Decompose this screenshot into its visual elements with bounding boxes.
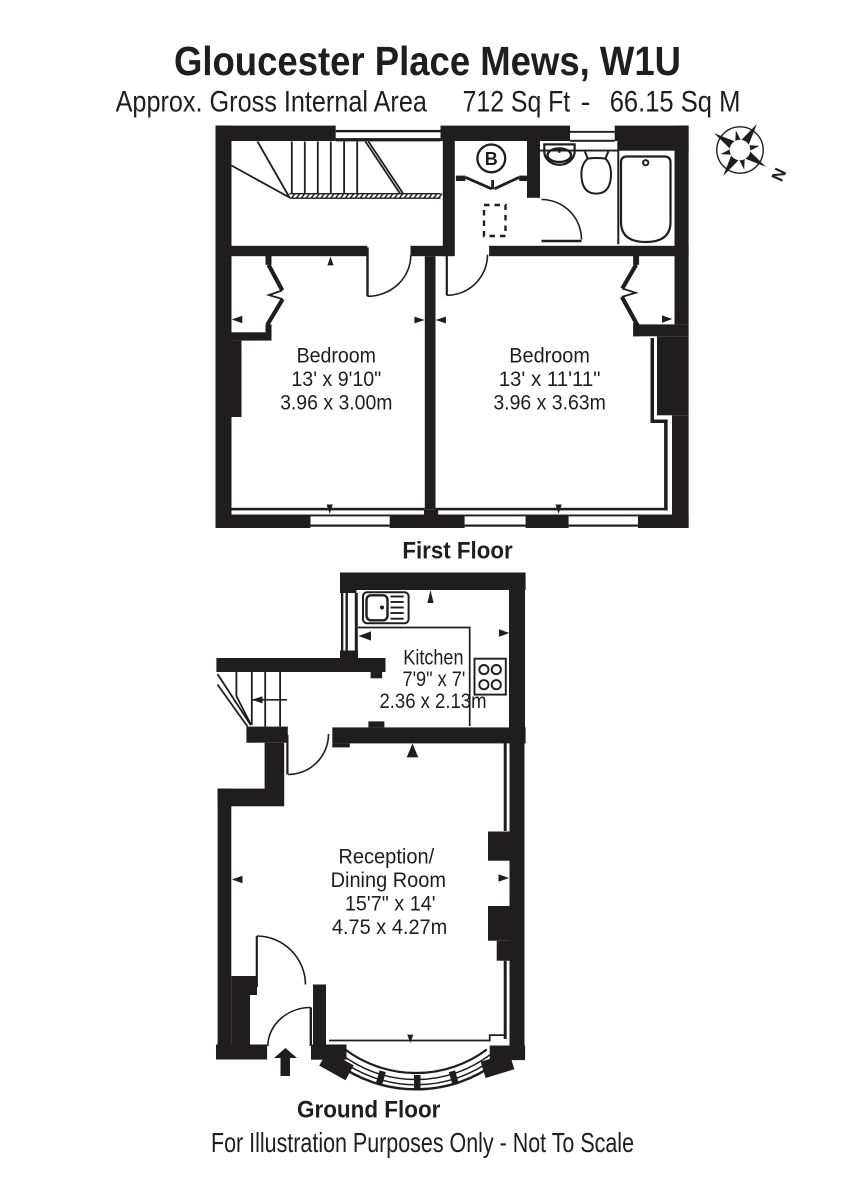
svg-text:Ground Floor: Ground Floor [297, 1097, 440, 1124]
svg-text:Kitchen: Kitchen [403, 646, 463, 670]
svg-text:Bedroom: Bedroom [509, 343, 590, 367]
svg-text:7'9" x 7': 7'9" x 7' [403, 667, 466, 691]
svg-text:Bedroom: Bedroom [297, 343, 376, 367]
svg-text:15'7" x 14': 15'7" x 14' [345, 892, 436, 916]
svg-text:-: - [581, 85, 591, 118]
svg-text:For Illustration Purposes Only: For Illustration Purposes Only - Not To … [211, 1127, 634, 1158]
svg-text:Approx. Gross Internal Area: Approx. Gross Internal Area [116, 85, 428, 118]
svg-text:First Floor: First Floor [402, 538, 512, 565]
svg-text:B: B [485, 149, 498, 169]
svg-text:Reception/: Reception/ [338, 845, 434, 869]
svg-text:N: N [767, 165, 789, 184]
svg-text:Gloucester Place Mews, W1U: Gloucester Place Mews, W1U [174, 38, 681, 84]
svg-text:3.96 x 3.63m: 3.96 x 3.63m [493, 391, 606, 415]
svg-text:13' x 11'11": 13' x 11'11" [499, 367, 601, 391]
svg-text:3.96 x 3.00m: 3.96 x 3.00m [280, 391, 392, 415]
svg-text:2.36 x 2.13m: 2.36 x 2.13m [380, 689, 487, 713]
svg-text:66.15 Sq M: 66.15 Sq M [610, 85, 741, 118]
svg-text:Dining Room: Dining Room [331, 868, 446, 892]
svg-text:712 Sq Ft: 712 Sq Ft [463, 85, 571, 118]
svg-text:13' x 9'10": 13' x 9'10" [291, 367, 381, 391]
svg-text:4.75 x 4.27m: 4.75 x 4.27m [332, 915, 447, 939]
